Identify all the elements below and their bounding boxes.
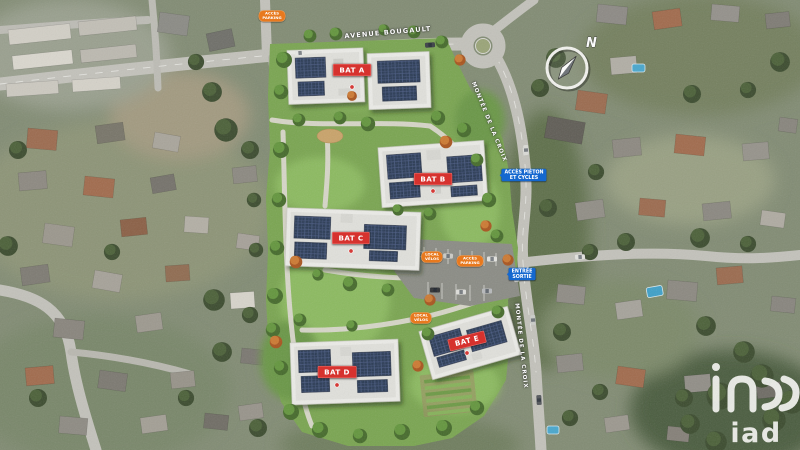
callout-pedestrian-access: ACCÈS PIÉTON ET CYCLES bbox=[501, 169, 546, 182]
building-label-bat-c: BAT C bbox=[332, 232, 370, 244]
photo-grain bbox=[0, 0, 800, 450]
callout-bike-room-south: LOCAL VÉLOS bbox=[410, 312, 432, 324]
callout-access-parking-north: ACCÈS PARKING bbox=[259, 10, 286, 22]
callout-line: PARKING bbox=[262, 16, 281, 20]
aerial-photo: N iad bbox=[0, 0, 800, 450]
callout-access-parking-central: ACCÈS PARKING bbox=[457, 255, 484, 267]
callout-line: VÉLOS bbox=[425, 257, 439, 261]
callout-line: ET CYCLES bbox=[504, 175, 543, 180]
callout-bike-room-central: LOCAL VÉLOS bbox=[421, 251, 443, 263]
callout-entry-exit: ENTRÉE SORTIE bbox=[509, 268, 536, 281]
building-label-bat-b: BAT B bbox=[414, 173, 452, 185]
aerial-map: N iad AVENUE BOUGAULT MONTÉE DE LA CROIX… bbox=[0, 0, 800, 450]
building-label-bat-a: BAT A bbox=[333, 64, 371, 76]
callout-line: VÉLOS bbox=[414, 318, 428, 322]
building-label-bat-d: BAT D bbox=[318, 366, 357, 378]
callout-line: SORTIE bbox=[512, 274, 533, 279]
callout-line: PARKING bbox=[460, 261, 479, 265]
